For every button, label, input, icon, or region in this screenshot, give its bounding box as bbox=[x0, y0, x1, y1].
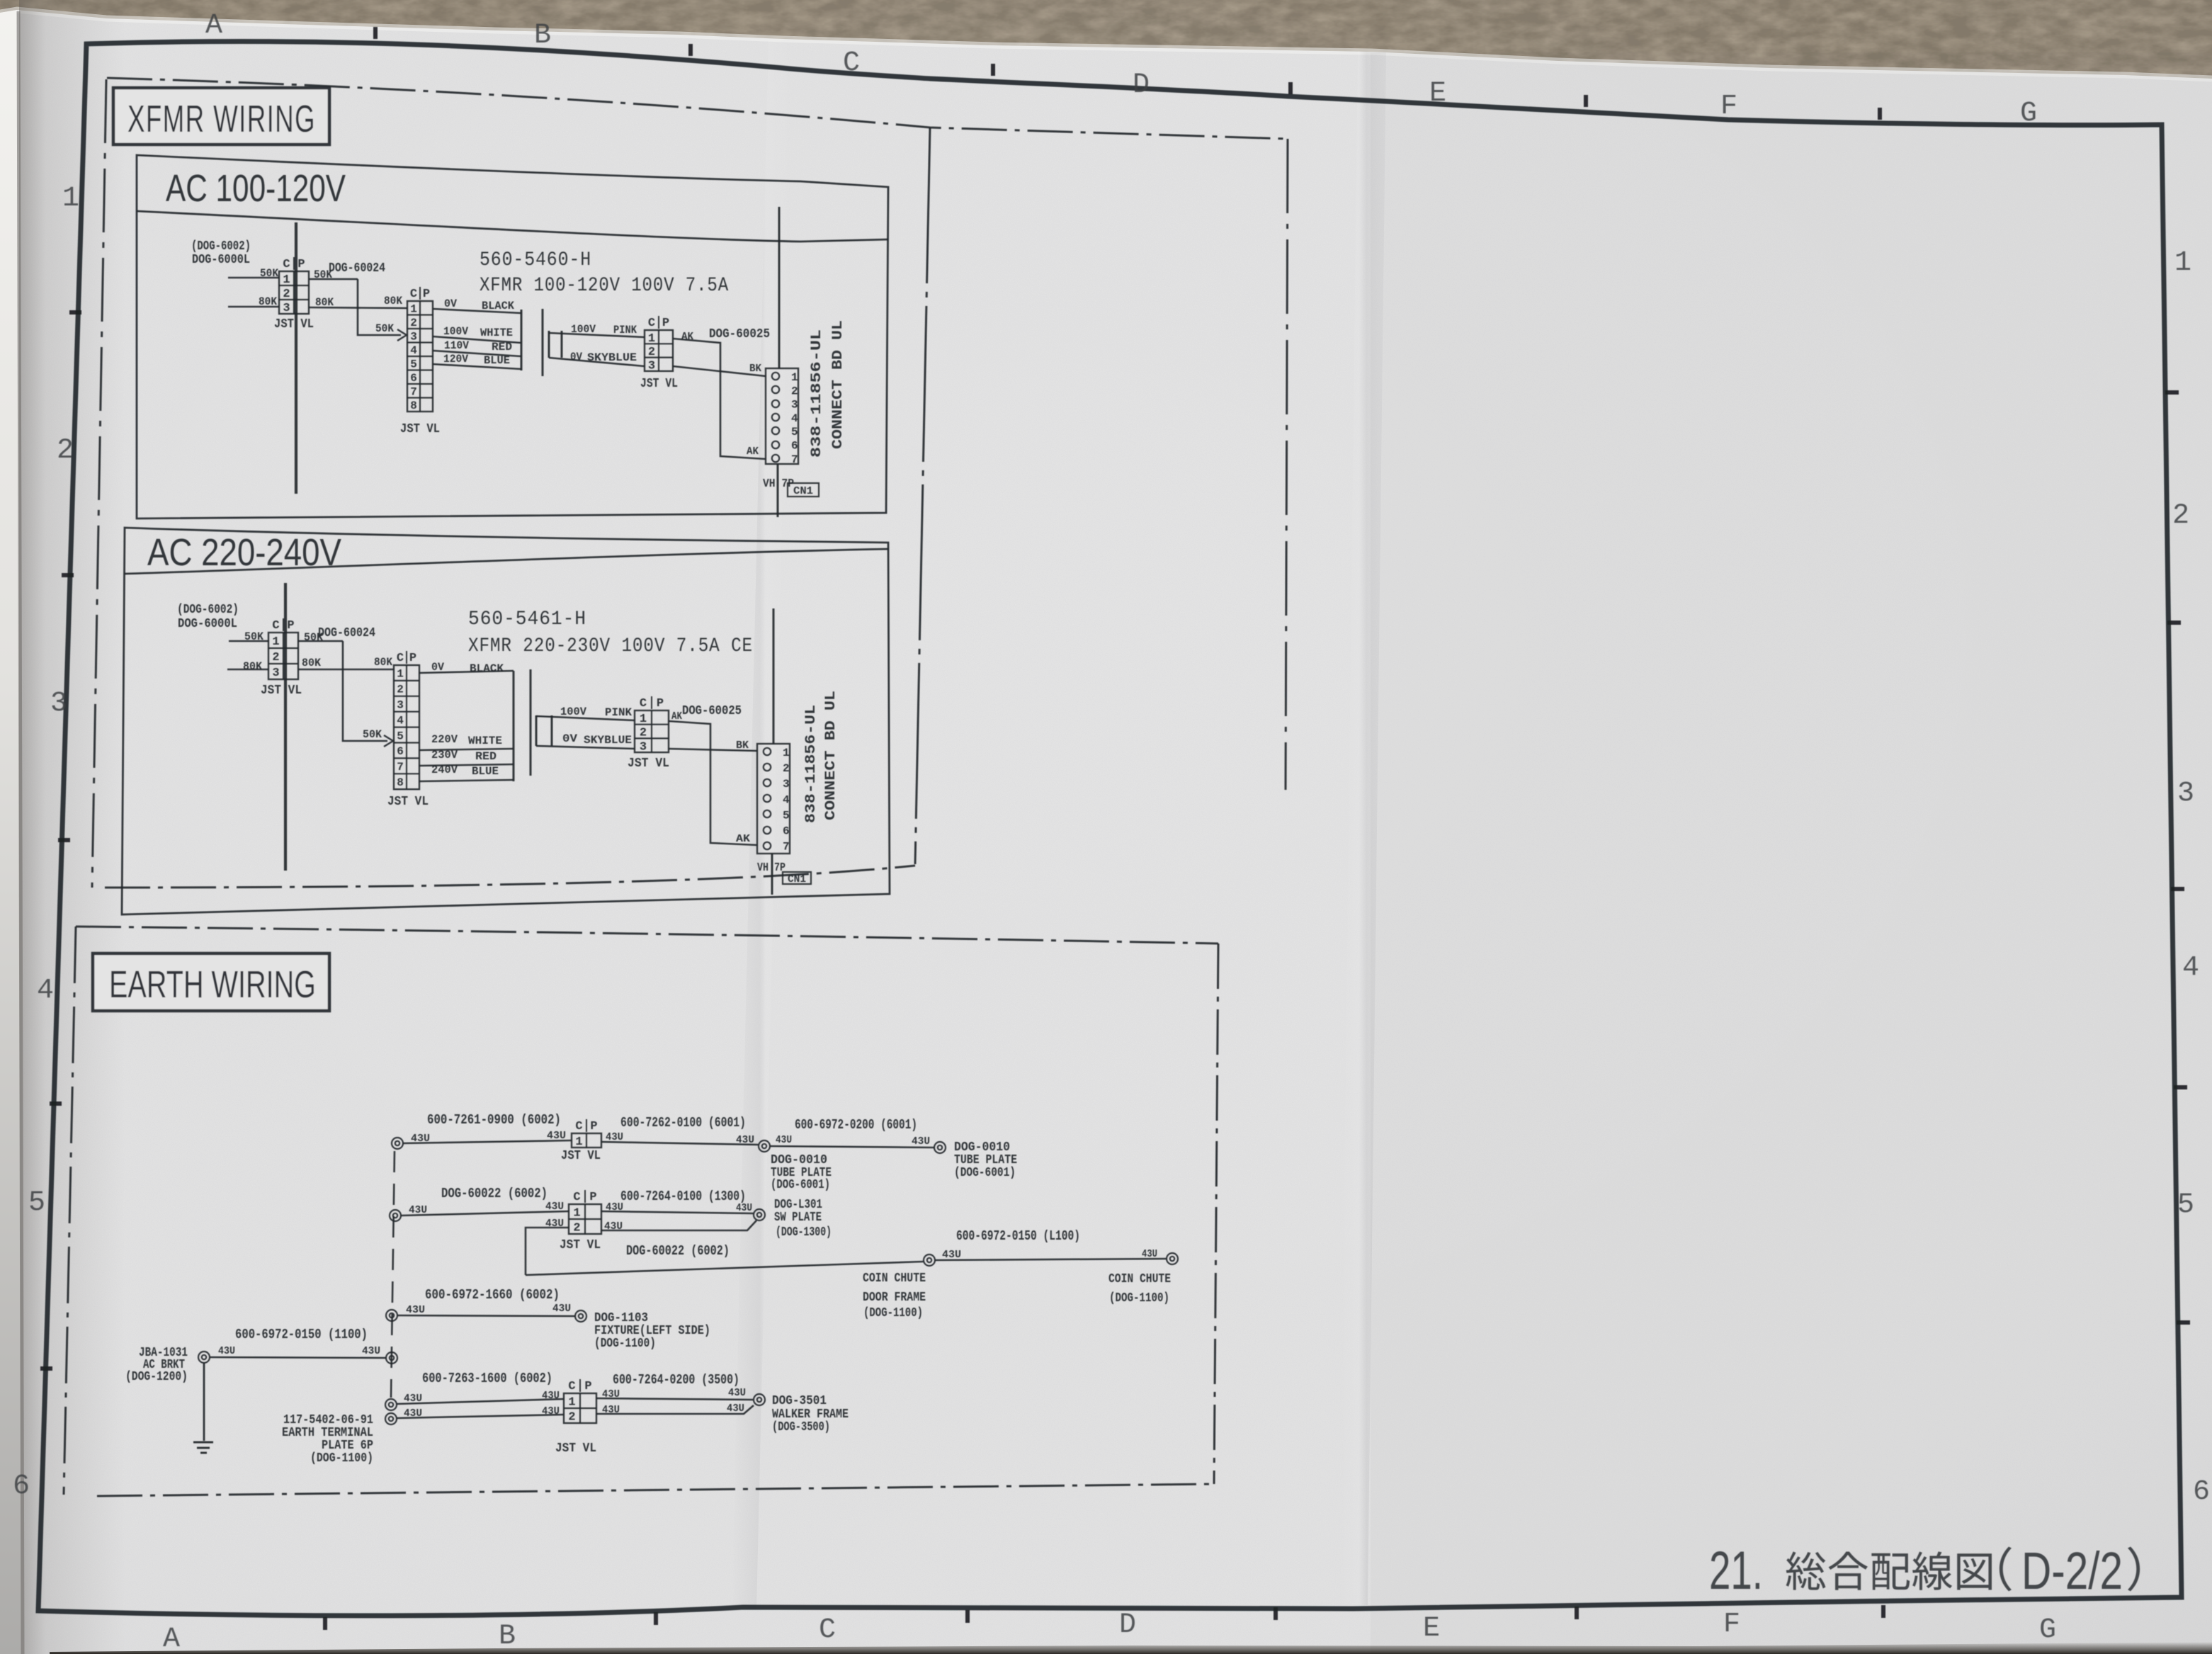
svg-text:43U: 43U bbox=[942, 1249, 961, 1261]
svg-text:COIN CHUTE: COIN CHUTE bbox=[863, 1271, 926, 1286]
svg-text:SKYBLUE: SKYBLUE bbox=[584, 734, 632, 747]
svg-text:50K: 50K bbox=[314, 268, 332, 281]
svg-text:JST VL: JST VL bbox=[555, 1441, 596, 1456]
svg-text:E: E bbox=[1423, 1613, 1440, 1645]
svg-text:2: 2 bbox=[791, 385, 798, 397]
svg-text:2: 2 bbox=[397, 684, 404, 696]
svg-text:43U: 43U bbox=[728, 1387, 746, 1399]
svg-text:JST VL: JST VL bbox=[560, 1238, 601, 1252]
svg-text:DOG-L301: DOG-L301 bbox=[774, 1198, 822, 1212]
svg-text:43U: 43U bbox=[727, 1403, 744, 1415]
svg-text:43U: 43U bbox=[542, 1405, 560, 1417]
svg-text:(DOG-6001): (DOG-6001) bbox=[954, 1166, 1016, 1180]
svg-text:AC 100-120V: AC 100-120V bbox=[166, 167, 346, 210]
svg-text:100V: 100V bbox=[571, 323, 596, 336]
svg-text:50K: 50K bbox=[375, 322, 394, 335]
svg-text:3: 3 bbox=[791, 399, 798, 412]
svg-text:JST VL: JST VL bbox=[274, 317, 314, 332]
svg-text:C: C bbox=[648, 317, 655, 330]
svg-text:2: 2 bbox=[568, 1411, 575, 1424]
svg-text:P: P bbox=[297, 258, 305, 271]
svg-text:0V: 0V bbox=[562, 732, 577, 745]
svg-text:F: F bbox=[1723, 1609, 1740, 1641]
svg-text:80K: 80K bbox=[384, 295, 402, 307]
svg-text:(DOG-3500): (DOG-3500) bbox=[772, 1420, 830, 1434]
svg-text:838-11856-UL: 838-11856-UL bbox=[803, 705, 819, 823]
svg-text:DOG-60024: DOG-60024 bbox=[318, 626, 375, 640]
svg-text:C: C bbox=[283, 258, 290, 271]
svg-text:600-7262-0100 (6001): 600-7262-0100 (6001) bbox=[620, 1115, 746, 1131]
svg-text:P: P bbox=[584, 1380, 591, 1393]
svg-text:5: 5 bbox=[783, 809, 790, 822]
svg-text:50K: 50K bbox=[260, 267, 278, 280]
svg-text:BLACK: BLACK bbox=[470, 662, 504, 675]
svg-text:0V: 0V bbox=[431, 661, 444, 674]
svg-text:G: G bbox=[2020, 98, 2037, 130]
svg-text:6: 6 bbox=[397, 745, 404, 758]
svg-text:3: 3 bbox=[640, 740, 647, 754]
svg-text:1: 1 bbox=[283, 273, 290, 287]
svg-text:B: B bbox=[499, 1621, 516, 1653]
svg-text:50K: 50K bbox=[363, 728, 382, 741]
svg-text:0V: 0V bbox=[570, 351, 582, 363]
svg-text:600-7263-1600 (6002): 600-7263-1600 (6002) bbox=[422, 1371, 552, 1386]
svg-text:C: C bbox=[568, 1380, 575, 1393]
svg-text:D: D bbox=[1133, 69, 1150, 101]
svg-text:PINK: PINK bbox=[605, 706, 632, 719]
svg-text:C: C bbox=[843, 47, 860, 79]
svg-text:DOG-6000L: DOG-6000L bbox=[178, 617, 237, 631]
svg-text:3: 3 bbox=[410, 331, 417, 344]
svg-text:DOG-1103: DOG-1103 bbox=[594, 1311, 648, 1325]
svg-text:P: P bbox=[287, 619, 294, 633]
svg-text:600-6972-0200 (6001): 600-6972-0200 (6001) bbox=[795, 1117, 917, 1133]
svg-text:P: P bbox=[589, 1191, 596, 1204]
svg-text:JST VL: JST VL bbox=[561, 1149, 601, 1163]
svg-text:560-5461-H: 560-5461-H bbox=[468, 608, 586, 630]
svg-text:600-6972-0150 (1100): 600-6972-0150 (1100) bbox=[235, 1327, 368, 1342]
svg-text:0V: 0V bbox=[444, 298, 457, 310]
svg-text:43U: 43U bbox=[218, 1345, 235, 1357]
svg-text:100V: 100V bbox=[560, 706, 586, 718]
svg-text:600-7261-0900 (6002): 600-7261-0900 (6002) bbox=[427, 1112, 561, 1128]
svg-text:WHITE: WHITE bbox=[468, 735, 502, 747]
svg-text:6: 6 bbox=[791, 440, 798, 453]
svg-text:DOG-60025: DOG-60025 bbox=[682, 704, 742, 718]
svg-text:43U: 43U bbox=[552, 1303, 571, 1315]
svg-text:PINK: PINK bbox=[613, 324, 637, 336]
svg-text:600-7264-0100 (1300): 600-7264-0100 (1300) bbox=[620, 1189, 746, 1204]
svg-text:SKYBLUE: SKYBLUE bbox=[587, 351, 637, 364]
svg-text:600-6972-0150 (L100): 600-6972-0150 (L100) bbox=[956, 1228, 1080, 1244]
svg-text:(DOG-1100): (DOG-1100) bbox=[1109, 1291, 1169, 1305]
svg-text:DOG-6000L: DOG-6000L bbox=[192, 253, 250, 267]
svg-text:AK: AK bbox=[747, 446, 759, 458]
svg-text:(DOG-6002): (DOG-6002) bbox=[191, 239, 251, 254]
svg-text:PLATE 6P: PLATE 6P bbox=[322, 1439, 373, 1453]
svg-text:838-11856-UL: 838-11856-UL bbox=[809, 329, 825, 458]
svg-text:RED: RED bbox=[475, 750, 497, 763]
svg-text:BLUE: BLUE bbox=[472, 765, 499, 778]
svg-text:8: 8 bbox=[397, 776, 404, 789]
svg-text:DOOR FRAME: DOOR FRAME bbox=[863, 1291, 926, 1305]
svg-text:1: 1 bbox=[640, 713, 647, 726]
svg-text:C: C bbox=[575, 1120, 582, 1133]
svg-text:(DOG-6002): (DOG-6002) bbox=[177, 603, 239, 617]
svg-text:6: 6 bbox=[410, 372, 417, 385]
svg-text:1: 1 bbox=[397, 668, 404, 681]
svg-text:AK: AK bbox=[736, 833, 750, 845]
svg-text:4: 4 bbox=[37, 975, 54, 1007]
svg-text:80K: 80K bbox=[243, 660, 262, 673]
svg-text:1: 1 bbox=[575, 1135, 582, 1149]
svg-text:80K: 80K bbox=[374, 656, 392, 669]
svg-text:G: G bbox=[2039, 1614, 2056, 1646]
svg-text:DOG-60022 (6002): DOG-60022 (6002) bbox=[441, 1186, 548, 1201]
svg-text:WALKER FRAME: WALKER FRAME bbox=[772, 1407, 849, 1422]
svg-text:7: 7 bbox=[410, 386, 417, 399]
svg-text:1: 1 bbox=[62, 183, 79, 215]
svg-text:43U: 43U bbox=[736, 1202, 752, 1214]
svg-text:2: 2 bbox=[640, 727, 647, 740]
svg-text:4: 4 bbox=[783, 793, 790, 806]
svg-text:43U: 43U bbox=[912, 1135, 930, 1148]
svg-text:110V: 110V bbox=[444, 339, 469, 352]
svg-text:P: P bbox=[423, 288, 430, 301]
svg-text:BK: BK bbox=[736, 740, 749, 752]
svg-text:4: 4 bbox=[397, 714, 404, 727]
svg-text:CN1: CN1 bbox=[793, 485, 813, 497]
svg-text:21.: 21. bbox=[1709, 1541, 1763, 1601]
svg-text:P: P bbox=[590, 1120, 597, 1133]
svg-text:8: 8 bbox=[410, 400, 417, 412]
svg-text:240V: 240V bbox=[431, 764, 458, 776]
svg-text:C: C bbox=[397, 652, 404, 665]
svg-text:(DOG-6001): (DOG-6001) bbox=[771, 1178, 830, 1192]
svg-text:6: 6 bbox=[2193, 1476, 2210, 1508]
svg-text:1: 1 bbox=[791, 371, 798, 384]
svg-text:A: A bbox=[205, 10, 222, 42]
svg-text:CONNECT BD UL: CONNECT BD UL bbox=[830, 320, 846, 449]
svg-text:43U: 43U bbox=[542, 1390, 560, 1402]
svg-text:JST VL: JST VL bbox=[261, 684, 302, 698]
svg-text:1: 1 bbox=[568, 1396, 575, 1410]
svg-text:120V: 120V bbox=[443, 353, 468, 366]
svg-text:4: 4 bbox=[410, 344, 417, 357]
svg-text:1: 1 bbox=[648, 332, 655, 346]
svg-text:D-2/2: D-2/2 bbox=[2021, 1541, 2123, 1600]
svg-text:6: 6 bbox=[783, 825, 790, 838]
svg-text:100V: 100V bbox=[443, 325, 468, 338]
svg-text:JST VL: JST VL bbox=[640, 377, 678, 391]
svg-text:3: 3 bbox=[783, 778, 790, 791]
svg-text:XFMR WIRING: XFMR WIRING bbox=[127, 98, 316, 140]
svg-text:EARTH WIRING: EARTH WIRING bbox=[109, 963, 316, 1006]
svg-text:43U: 43U bbox=[545, 1201, 564, 1213]
svg-text:DOG-0010: DOG-0010 bbox=[954, 1140, 1010, 1155]
svg-text:FIXTURE(LEFT SIDE): FIXTURE(LEFT SIDE) bbox=[594, 1324, 710, 1338]
svg-text:43U: 43U bbox=[406, 1304, 425, 1316]
svg-text:E: E bbox=[1429, 78, 1446, 110]
svg-text:XFMR 220-230V 100V 7.5A CE: XFMR 220-230V 100V 7.5A CE bbox=[468, 635, 753, 657]
svg-text:7: 7 bbox=[397, 761, 404, 774]
svg-text:C: C bbox=[819, 1614, 836, 1646]
svg-text:117-5402-06-91: 117-5402-06-91 bbox=[283, 1413, 373, 1427]
svg-text:(DOG-1100): (DOG-1100) bbox=[310, 1451, 373, 1466]
svg-text:DOG-60022 (6002): DOG-60022 (6002) bbox=[626, 1243, 730, 1259]
svg-text:CONNECT BD UL: CONNECT BD UL bbox=[823, 691, 839, 820]
svg-text:F: F bbox=[1720, 91, 1737, 123]
svg-text:2: 2 bbox=[783, 762, 790, 775]
svg-text:WHITE: WHITE bbox=[480, 327, 513, 339]
svg-text:(DOG-1300): (DOG-1300) bbox=[776, 1225, 832, 1240]
svg-text:2: 2 bbox=[573, 1222, 580, 1235]
svg-text:1: 1 bbox=[573, 1207, 580, 1220]
svg-text:43U: 43U bbox=[362, 1345, 380, 1357]
svg-text:DOG-0010: DOG-0010 bbox=[771, 1153, 827, 1167]
svg-text:RED: RED bbox=[492, 341, 512, 353]
svg-text:C: C bbox=[573, 1191, 580, 1204]
svg-text:P: P bbox=[662, 317, 669, 330]
svg-text:3: 3 bbox=[648, 359, 655, 373]
svg-text:220V: 220V bbox=[431, 733, 458, 746]
svg-text:P: P bbox=[657, 697, 664, 710]
svg-text:3: 3 bbox=[2177, 778, 2194, 810]
svg-text:1: 1 bbox=[272, 635, 279, 649]
svg-text:D: D bbox=[1119, 1609, 1136, 1641]
svg-text:(DOG-1200): (DOG-1200) bbox=[125, 1370, 188, 1384]
svg-text:80K: 80K bbox=[259, 295, 277, 308]
svg-text:DOG-60024: DOG-60024 bbox=[329, 261, 385, 276]
svg-text:SW PLATE: SW PLATE bbox=[774, 1211, 822, 1225]
svg-text:4: 4 bbox=[2182, 952, 2199, 984]
svg-text:JST VL: JST VL bbox=[387, 795, 429, 809]
svg-text:1: 1 bbox=[2174, 247, 2191, 279]
svg-text:XFMR 100-120V 100V 7.5A: XFMR 100-120V 100V 7.5A bbox=[480, 275, 729, 297]
svg-text:3: 3 bbox=[272, 667, 279, 680]
svg-text:43U: 43U bbox=[547, 1130, 566, 1142]
svg-text:7: 7 bbox=[791, 453, 798, 466]
svg-text:80K: 80K bbox=[315, 296, 334, 309]
svg-text:2: 2 bbox=[648, 346, 655, 359]
svg-text:3: 3 bbox=[397, 699, 404, 712]
svg-text:5: 5 bbox=[410, 358, 417, 371]
svg-text:1: 1 bbox=[783, 747, 790, 759]
svg-text:2: 2 bbox=[410, 317, 417, 329]
svg-text:C: C bbox=[410, 288, 417, 301]
svg-text:TUBE PLATE: TUBE PLATE bbox=[954, 1153, 1017, 1167]
svg-text:600-6972-1660 (6002): 600-6972-1660 (6002) bbox=[425, 1287, 560, 1303]
svg-text:50K: 50K bbox=[304, 631, 323, 644]
svg-text:6: 6 bbox=[13, 1471, 30, 1502]
svg-text:VH 7P: VH 7P bbox=[757, 861, 785, 875]
svg-text:BLACK: BLACK bbox=[482, 300, 514, 312]
svg-text:5: 5 bbox=[397, 730, 404, 742]
svg-text:2: 2 bbox=[272, 651, 279, 664]
svg-text:600-7264-0200 (3500): 600-7264-0200 (3500) bbox=[613, 1372, 739, 1388]
svg-text:7: 7 bbox=[783, 841, 790, 854]
svg-text:43U: 43U bbox=[1142, 1248, 1157, 1260]
svg-text:2: 2 bbox=[2172, 500, 2189, 532]
svg-text:560-5460-H: 560-5460-H bbox=[480, 249, 591, 271]
svg-text:50K: 50K bbox=[244, 630, 263, 643]
svg-text:2: 2 bbox=[57, 435, 74, 467]
svg-text:80K: 80K bbox=[302, 657, 321, 669]
svg-text:BLUE: BLUE bbox=[484, 354, 510, 367]
svg-text:1: 1 bbox=[410, 303, 417, 316]
svg-text:P: P bbox=[409, 652, 416, 665]
svg-text:COIN CHUTE: COIN CHUTE bbox=[1108, 1272, 1171, 1286]
svg-text:43U: 43U bbox=[736, 1134, 754, 1146]
svg-text:JST VL: JST VL bbox=[628, 757, 669, 771]
svg-text:43U: 43U bbox=[776, 1134, 792, 1146]
svg-text:230V: 230V bbox=[431, 749, 458, 761]
svg-text:5: 5 bbox=[2177, 1189, 2194, 1221]
svg-text:C: C bbox=[272, 619, 279, 633]
svg-text:(DOG-1100): (DOG-1100) bbox=[594, 1337, 656, 1351]
svg-text:5: 5 bbox=[791, 426, 798, 438]
svg-text:3: 3 bbox=[283, 302, 290, 315]
svg-text:B: B bbox=[534, 20, 551, 52]
svg-text:4: 4 bbox=[791, 412, 798, 425]
svg-text:AC 220-240V: AC 220-240V bbox=[147, 531, 341, 574]
svg-text:BK: BK bbox=[749, 363, 761, 375]
svg-text:DOG-3501: DOG-3501 bbox=[772, 1394, 827, 1408]
svg-text:2: 2 bbox=[283, 288, 290, 301]
svg-text:CN1: CN1 bbox=[788, 873, 806, 885]
svg-text:5: 5 bbox=[28, 1187, 45, 1219]
svg-text:3: 3 bbox=[50, 688, 67, 720]
svg-text:DOG-60025: DOG-60025 bbox=[709, 327, 770, 341]
svg-text:VH 7P: VH 7P bbox=[763, 477, 794, 491]
svg-text:A: A bbox=[163, 1624, 180, 1654]
svg-text:EARTH TERMINAL: EARTH TERMINAL bbox=[282, 1426, 373, 1440]
svg-text:JST VL: JST VL bbox=[400, 422, 440, 436]
svg-text:(DOG-1100): (DOG-1100) bbox=[863, 1306, 923, 1320]
svg-text:C: C bbox=[640, 697, 647, 710]
